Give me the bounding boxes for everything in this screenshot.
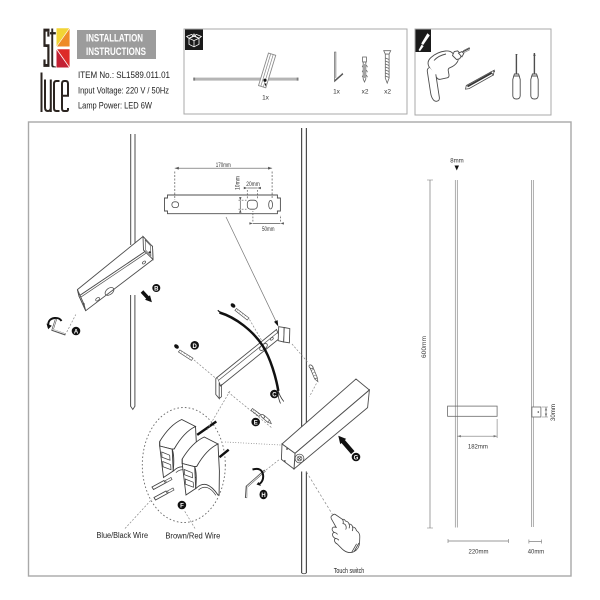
svg-text:182mm: 182mm	[468, 444, 488, 451]
svg-text:Blue/Black Wire: Blue/Black Wire	[97, 531, 149, 540]
svg-text:20mm: 20mm	[246, 182, 260, 188]
svg-text:30mm: 30mm	[550, 404, 557, 421]
svg-text:x2: x2	[384, 89, 391, 96]
svg-text:8mm: 8mm	[450, 158, 464, 165]
svg-text:B: B	[154, 287, 159, 293]
svg-text:A: A	[74, 330, 79, 336]
svg-text:F: F	[180, 504, 184, 510]
svg-text:H: H	[261, 493, 265, 499]
svg-text:170mm: 170mm	[216, 163, 231, 169]
svg-text:10mm: 10mm	[236, 176, 242, 190]
svg-text:Brown/Red Wire: Brown/Red Wire	[165, 531, 220, 540]
svg-text:G: G	[354, 456, 359, 462]
svg-text:INSTALLATION: INSTALLATION	[86, 33, 143, 45]
svg-text:Touch switch: Touch switch	[334, 566, 365, 575]
svg-text:220mm: 220mm	[469, 549, 489, 556]
svg-text:1x: 1x	[262, 95, 270, 102]
svg-text:Lamp Power: LED 6W: Lamp Power: LED 6W	[78, 101, 152, 112]
svg-text:ITEM No.: SL1589.011.01: ITEM No.: SL1589.011.01	[78, 70, 170, 81]
svg-text:x2: x2	[362, 89, 369, 96]
svg-text:C: C	[272, 393, 277, 399]
svg-text:INSTRUCTIONS: INSTRUCTIONS	[86, 46, 146, 58]
svg-text:1x: 1x	[333, 89, 341, 96]
svg-text:D: D	[193, 344, 198, 350]
svg-text:E: E	[254, 421, 258, 427]
svg-text:600mm: 600mm	[421, 336, 428, 358]
svg-text:Input Voltage: 220 V / 50Hz: Input Voltage: 220 V / 50Hz	[78, 86, 169, 97]
svg-text:50mm: 50mm	[262, 227, 275, 233]
svg-text:40mm: 40mm	[528, 549, 545, 556]
